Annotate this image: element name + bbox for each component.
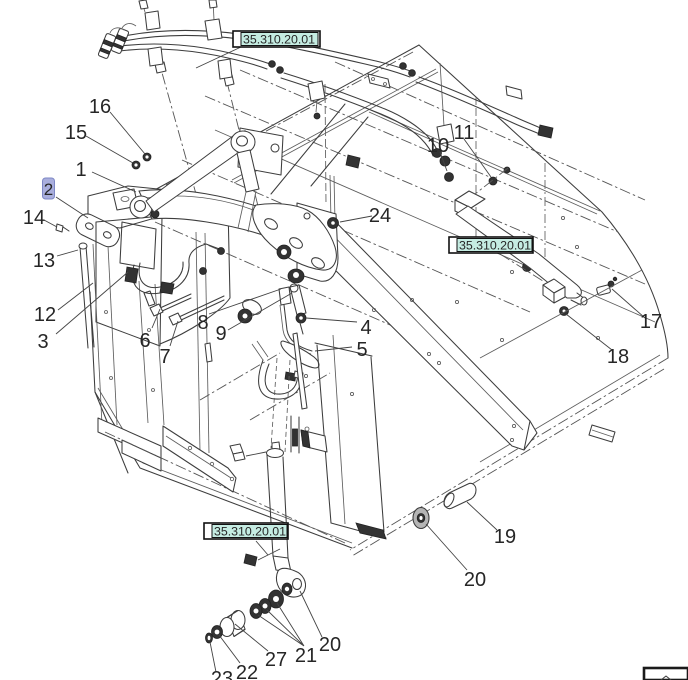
- svg-text:17: 17: [640, 311, 662, 333]
- svg-text:11: 11: [454, 122, 475, 144]
- svg-text:16: 16: [89, 96, 111, 118]
- svg-text:1: 1: [75, 159, 86, 181]
- svg-text:14: 14: [23, 207, 45, 229]
- svg-text:7: 7: [159, 346, 170, 368]
- svg-text:10: 10: [427, 135, 449, 157]
- svg-text:35.310.20.01: 35.310.20.01: [459, 239, 531, 253]
- svg-text:13: 13: [33, 250, 55, 272]
- svg-text:24: 24: [369, 205, 391, 227]
- svg-text:20: 20: [464, 569, 486, 591]
- svg-text:8: 8: [197, 312, 208, 334]
- svg-text:4: 4: [360, 317, 371, 339]
- svg-text:15: 15: [65, 122, 87, 144]
- svg-text:20: 20: [319, 634, 341, 656]
- svg-text:35.310.20.01: 35.310.20.01: [243, 33, 315, 47]
- svg-text:27: 27: [265, 649, 287, 671]
- svg-text:19: 19: [494, 526, 516, 548]
- svg-text:9: 9: [215, 323, 226, 345]
- svg-text:6: 6: [139, 330, 150, 352]
- svg-text:35.310.20.01: 35.310.20.01: [214, 525, 286, 539]
- svg-text:5: 5: [356, 339, 367, 361]
- svg-text:18: 18: [607, 346, 629, 368]
- svg-text:22: 22: [236, 662, 258, 680]
- svg-text:2: 2: [44, 180, 53, 199]
- svg-text:21: 21: [295, 645, 317, 667]
- svg-text:23: 23: [211, 668, 233, 680]
- svg-text:3: 3: [37, 331, 48, 353]
- svg-text:12: 12: [34, 304, 56, 326]
